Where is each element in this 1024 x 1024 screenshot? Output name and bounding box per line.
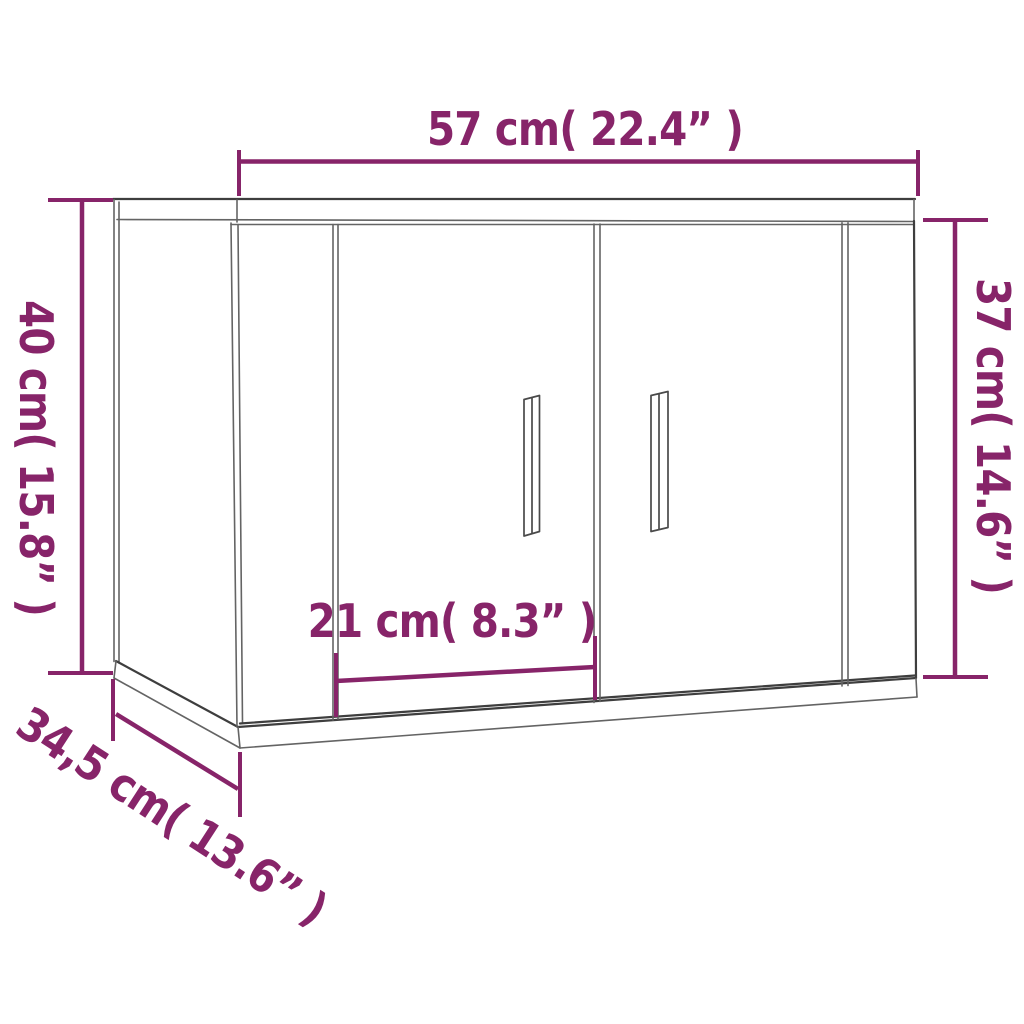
dimension-diagram: 57 cm( 22.4” ) 40 cm( 15.8” ) 37 cm( 14.… [0, 0, 1024, 1024]
door-handle-left [524, 396, 540, 537]
dim-label-width-top: 57 cm( 22.4” ) [427, 106, 743, 152]
dim-width-top-lines [239, 150, 918, 196]
dim-label-height-right: 37 cm( 14.6” ) [970, 278, 1016, 594]
door-handle-right [651, 392, 668, 532]
dim-label-height-left: 40 cm( 15.8” ) [13, 300, 59, 616]
cabinet-left-side-panel [114, 200, 238, 728]
door-right [842, 223, 848, 686]
cabinet-top-panel [113, 199, 915, 222]
dim-label-inner-width: 21 cm( 8.3” ) [308, 598, 597, 644]
